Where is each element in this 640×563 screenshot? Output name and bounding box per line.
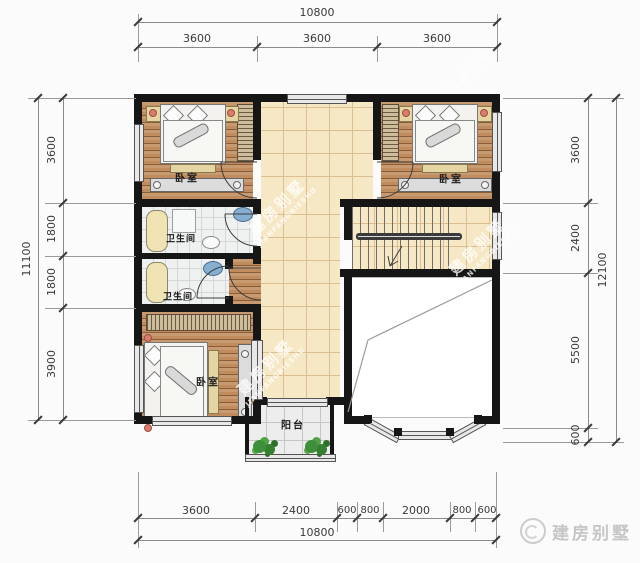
wall (253, 398, 261, 416)
brand-logo-icon (520, 518, 546, 544)
room-label-bedroom-top-left: 卧室 (175, 170, 199, 185)
dimension-line (138, 518, 496, 519)
wall (253, 246, 261, 264)
dim-top-seg: 3600 (423, 33, 451, 45)
balcony-sliding-door (267, 398, 328, 407)
wall (134, 253, 261, 259)
dim-left-total: 11100 (21, 242, 33, 277)
wall (134, 304, 261, 312)
wall (225, 296, 233, 308)
shower (172, 209, 196, 233)
dresser-knob (233, 181, 241, 189)
room-label-bedroom-bottom-left: 卧室 (196, 374, 220, 389)
bathtub (146, 210, 168, 252)
lamp-icon (227, 109, 235, 117)
dim-right-seg: 3600 (570, 136, 582, 164)
plant-icon (305, 440, 318, 453)
dim-bottom-total: 10800 (300, 527, 335, 539)
bedroom-sliding-door (251, 340, 263, 400)
lamp-icon (144, 424, 152, 432)
extension-line (257, 36, 258, 62)
wall (344, 199, 352, 240)
wall (344, 269, 352, 424)
hallway-floor-lower (261, 199, 340, 398)
dim-right-seg: 600 (570, 425, 582, 446)
extension-line (377, 36, 378, 62)
wall (225, 259, 233, 269)
lamp-icon (402, 109, 410, 117)
room-label-bedroom-top-right: 卧室 (439, 171, 463, 186)
dresser-knob (153, 181, 161, 189)
dim-left-seg: 1800 (46, 268, 58, 296)
brand-name: 建房别墅 (552, 519, 632, 544)
wardrobe (237, 104, 254, 162)
lamp-icon (149, 109, 157, 117)
dresser-knob (481, 181, 489, 189)
wall (253, 312, 261, 340)
wall (134, 199, 261, 207)
dim-right-total: 12100 (597, 253, 609, 288)
toilet (202, 236, 220, 249)
wall (245, 397, 249, 460)
dim-bottom-seg: 2000 (402, 505, 430, 517)
dim-top-seg: 3600 (183, 33, 211, 45)
dimension-line (38, 98, 39, 420)
room-label-bathroom-lower: 卫生间 (163, 290, 193, 303)
dim-bottom-seg: 800 (452, 505, 471, 517)
floor-plan-canvas: 卧室 卧室 卫生间 卫生间 卧室 阳台 10800 3600 3600 3600… (0, 0, 640, 563)
dresser-knob (401, 181, 409, 189)
window (134, 345, 144, 413)
dim-right-seg: 5500 (570, 336, 582, 364)
washbasin (233, 207, 253, 222)
wall (253, 207, 261, 214)
lamp-icon (144, 334, 152, 342)
wall (326, 397, 344, 405)
extension-line (45, 308, 136, 309)
dim-right-seg: 2400 (570, 224, 582, 252)
brand-watermark: 建房别墅 (520, 518, 632, 544)
dim-bottom-seg: 2400 (282, 505, 310, 517)
wall (394, 428, 402, 436)
dimension-line (616, 98, 617, 442)
wall (373, 94, 381, 160)
window (287, 94, 347, 104)
dresser-knob (241, 350, 249, 358)
dimension-line (138, 22, 497, 23)
window (152, 416, 232, 426)
dimension-line (63, 98, 64, 420)
hallway-floor-upper (261, 102, 373, 199)
dim-left-seg: 3900 (46, 350, 58, 378)
vestibule-floor (229, 259, 261, 304)
extension-line (45, 203, 136, 204)
extension-line (45, 256, 136, 257)
room-label-bathroom-upper: 卫生间 (166, 232, 196, 245)
plant-icon (253, 440, 266, 453)
wall (330, 397, 334, 460)
room-label-balcony: 阳台 (281, 417, 305, 432)
stair-handrail-line (358, 236, 460, 237)
extension-line (28, 420, 136, 421)
dim-left-seg: 3600 (46, 136, 58, 164)
wall (253, 94, 261, 160)
wall (340, 199, 500, 207)
wardrobe (382, 104, 399, 162)
dimension-line (138, 540, 496, 541)
window (492, 112, 502, 172)
dimension-line (138, 47, 497, 48)
dim-bottom-seg: 3600 (182, 505, 210, 517)
bay-window-front (398, 431, 452, 440)
wall (340, 269, 500, 277)
extension-line (503, 442, 624, 443)
washbasin (203, 261, 223, 276)
dim-top-seg: 3600 (303, 33, 331, 45)
extension-line (503, 98, 624, 99)
dim-top-total: 10800 (300, 7, 335, 19)
extension-line (28, 98, 136, 99)
wardrobe (146, 314, 251, 331)
dim-bottom-seg: 600 (477, 505, 496, 517)
double-height-void (348, 277, 494, 418)
dim-bottom-seg: 800 (360, 505, 379, 517)
window (134, 124, 144, 182)
window (492, 212, 502, 260)
dim-bottom-seg: 600 (337, 505, 356, 517)
balcony-railing (245, 454, 336, 462)
wall (446, 428, 454, 436)
lamp-icon (480, 109, 488, 117)
dim-left-seg: 1800 (46, 215, 58, 243)
